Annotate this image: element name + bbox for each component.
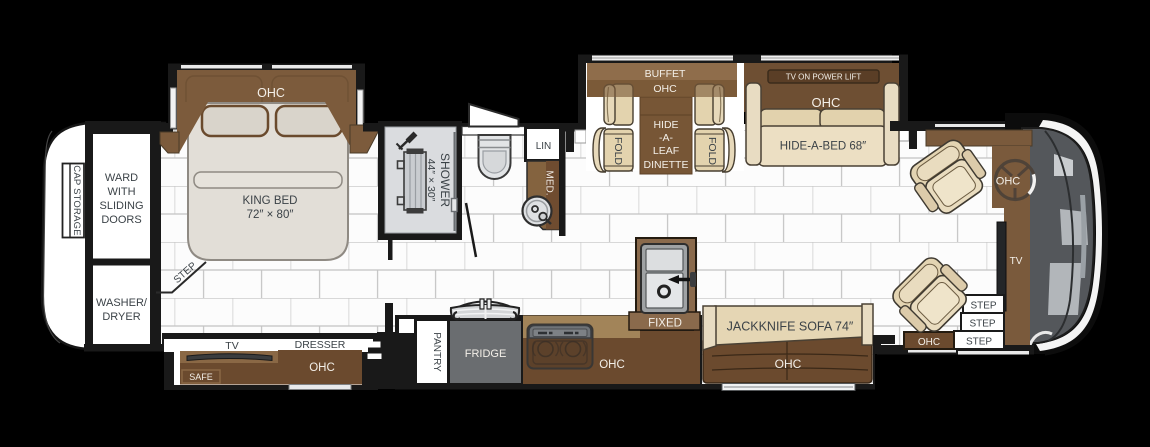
svg-text:BUFFET: BUFFET	[645, 68, 686, 80]
svg-text:OHC: OHC	[257, 86, 285, 100]
svg-text:DRESSER: DRESSER	[295, 339, 346, 351]
svg-text:JACKKNIFE SOFA 74″: JACKKNIFE SOFA 74″	[727, 320, 854, 334]
svg-text:OHC: OHC	[653, 83, 677, 95]
svg-text:44″ × 30″: 44″ × 30″	[425, 159, 437, 202]
svg-text:FOLD: FOLD	[706, 137, 718, 165]
svg-text:OHC: OHC	[996, 176, 1021, 188]
svg-text:PANTRY: PANTRY	[431, 332, 442, 372]
svg-text:STEP: STEP	[966, 337, 992, 348]
svg-text:WARD: WARD	[105, 172, 138, 184]
svg-text:WASHER/: WASHER/	[96, 297, 148, 309]
svg-text:STEP: STEP	[970, 301, 996, 312]
svg-text:FRIDGE: FRIDGE	[465, 348, 507, 360]
svg-text:OHC: OHC	[599, 359, 625, 371]
svg-text:OHC: OHC	[918, 337, 940, 348]
svg-text:LIN: LIN	[536, 141, 552, 152]
svg-text:CAP STORAGE: CAP STORAGE	[71, 165, 82, 235]
svg-text:SHOWER: SHOWER	[438, 153, 452, 207]
svg-text:DOORS: DOORS	[101, 214, 141, 226]
svg-text:TV ON POWER LIFT: TV ON POWER LIFT	[786, 73, 862, 82]
svg-text:72″ × 80″: 72″ × 80″	[247, 209, 294, 221]
svg-text:TV: TV	[1010, 256, 1023, 267]
svg-text:OHC: OHC	[775, 357, 802, 371]
svg-text:OHC: OHC	[812, 95, 841, 110]
svg-text:OHC: OHC	[309, 362, 335, 374]
svg-text:DRYER: DRYER	[102, 311, 140, 323]
svg-text:SAFE: SAFE	[189, 372, 213, 382]
svg-text:FIXED: FIXED	[648, 318, 682, 330]
svg-text:STEP: STEP	[969, 319, 995, 330]
svg-text:-A-: -A-	[659, 132, 674, 144]
svg-text:SLIDING: SLIDING	[99, 200, 143, 212]
svg-text:MED.: MED.	[544, 171, 555, 196]
svg-text:WITH: WITH	[107, 186, 135, 198]
svg-text:KING BED: KING BED	[243, 195, 298, 207]
svg-text:FOLD: FOLD	[612, 137, 624, 165]
svg-text:LEAF: LEAF	[653, 145, 679, 157]
svg-text:HIDE-A-BED 68″: HIDE-A-BED 68″	[780, 141, 867, 153]
svg-text:TV: TV	[225, 340, 238, 352]
svg-text:HIDE: HIDE	[653, 119, 678, 131]
svg-text:DINETTE: DINETTE	[644, 159, 689, 171]
